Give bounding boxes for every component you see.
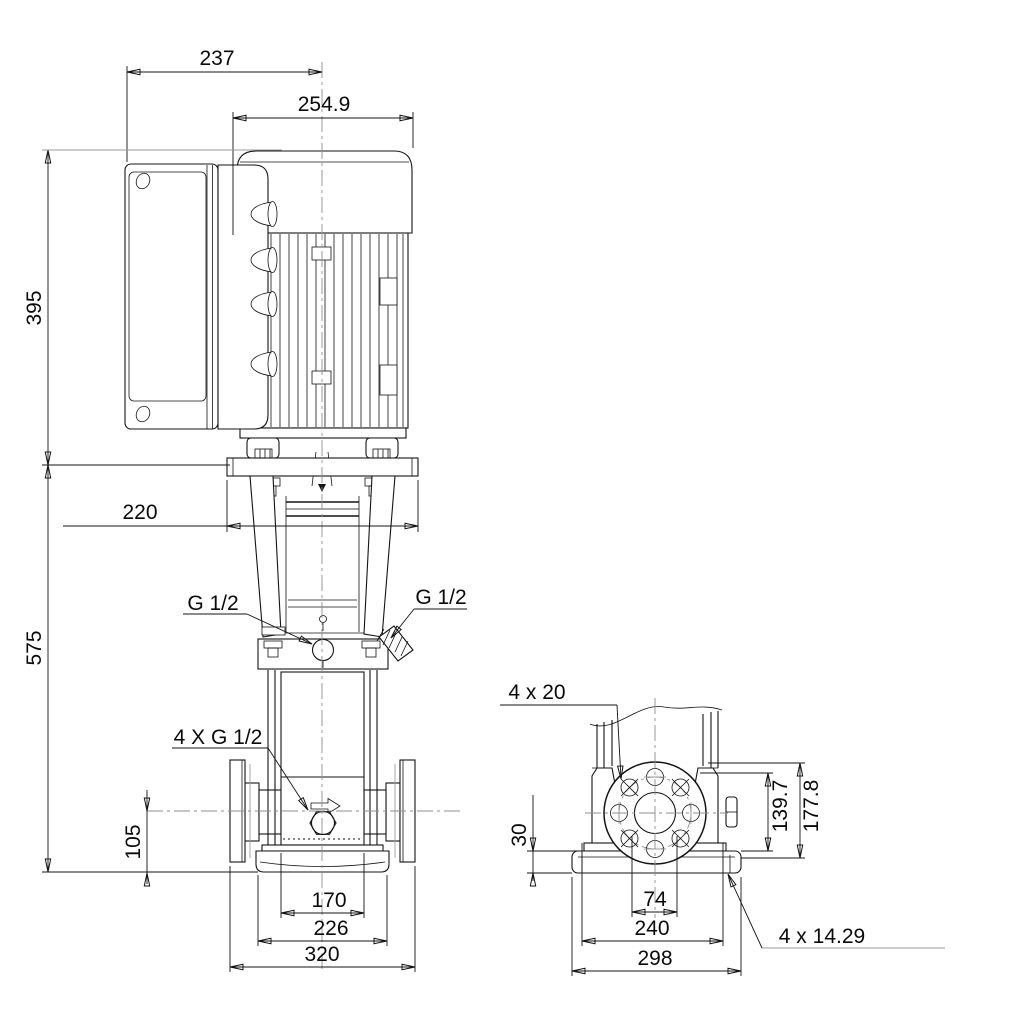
dim-port-to-port: 320 <box>304 943 339 966</box>
drawing-canvas: 237 254.9 395 575 220 G 1/2 G 1/2 4 X G … <box>0 0 1024 1024</box>
dim-foot-width-inner: 74 <box>643 888 667 911</box>
dim-motor-height: 395 <box>23 290 46 325</box>
dim-motor-width: 254.9 <box>298 93 351 116</box>
side-dimensions: 4 x 20 139.7 177.8 30 74 240 298 4 x 14.… <box>500 681 945 976</box>
break-line <box>590 706 722 725</box>
pump-head <box>258 616 413 670</box>
stool-flange <box>227 458 418 476</box>
stool-leg <box>250 476 281 637</box>
motor-foot-band <box>240 428 406 438</box>
dim-port-centre-height: 105 <box>122 824 145 859</box>
dim-base-plate-width: 298 <box>637 947 672 970</box>
dim-base-width: 226 <box>313 917 348 940</box>
pump-dimensional-drawing: 237 254.9 395 575 220 G 1/2 G 1/2 4 X G … <box>0 0 1024 1024</box>
dim-stool-flange: 220 <box>122 501 157 524</box>
dim-pump-height: 575 <box>23 630 46 665</box>
label-gauge-port-left: G 1/2 <box>187 592 238 615</box>
cable-gland <box>268 352 277 377</box>
dim-base-plate-height: 30 <box>508 823 531 846</box>
pump-base <box>256 845 389 872</box>
dim-flange-inner: 139.7 <box>769 780 792 833</box>
label-gauge-port-right: G 1/2 <box>415 586 466 609</box>
cable-gland <box>268 248 277 273</box>
control-box <box>125 164 277 429</box>
motor-stool <box>227 438 418 637</box>
front-view <box>125 151 418 872</box>
label-flange-bolt-holes: 4 x 20 <box>508 681 565 704</box>
stool-leg <box>364 476 395 637</box>
cable-gland <box>268 292 277 317</box>
dim-base-bolt-spacing: 240 <box>634 917 669 940</box>
label-base-bolt-holes: 4 x 14.29 <box>779 925 865 948</box>
gauge-port-circle <box>313 640 334 661</box>
dim-base-width-inner: 170 <box>311 889 346 912</box>
side-view <box>572 706 741 873</box>
label-gauge-ports: 4 X G 1/2 <box>174 726 263 749</box>
dim-flange-outer: 177.8 <box>800 780 823 833</box>
dim-control-box-width: 237 <box>199 47 234 70</box>
control-box-cover <box>125 164 218 429</box>
cable-gland <box>268 202 277 227</box>
